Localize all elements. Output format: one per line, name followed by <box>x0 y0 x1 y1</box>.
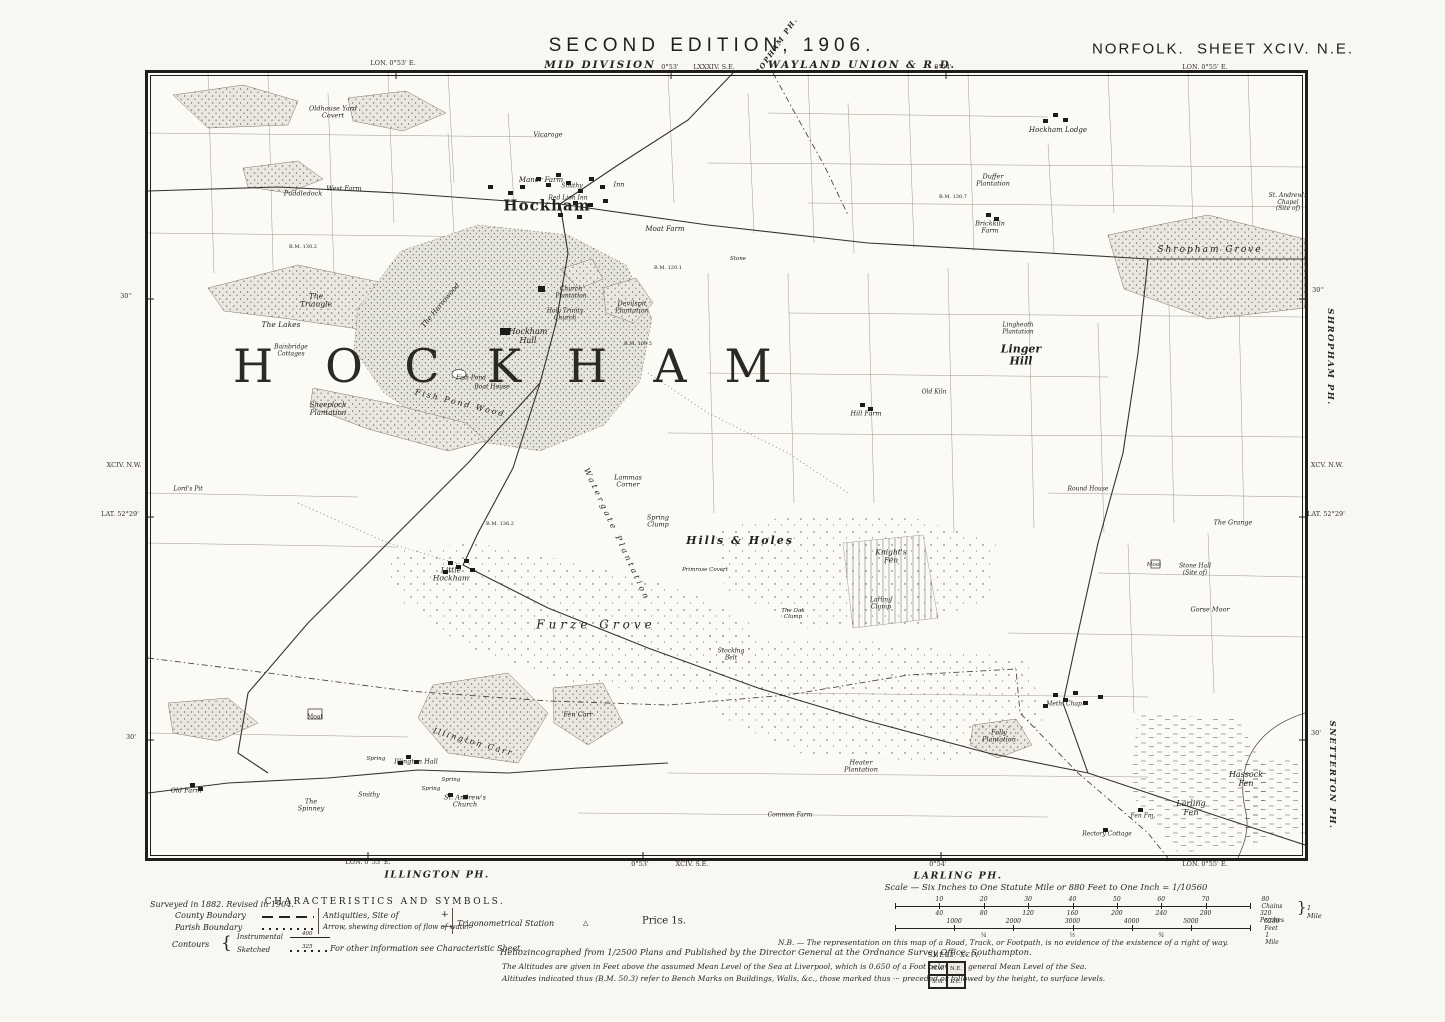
parish-boundary-sample <box>262 928 314 930</box>
place-label: Round House <box>1068 487 1109 494</box>
place-label: Spring <box>367 756 386 762</box>
scale-bar-part: 80 Chains <box>1262 896 1283 910</box>
scale-bar-part: 4000 <box>1124 918 1139 925</box>
antiquities-symbol: + <box>441 910 449 920</box>
scale-bar-part: 3000 <box>1065 918 1080 925</box>
place-label: Sheeplock Plantation <box>310 402 347 418</box>
place-label: Fen Carr <box>563 711 592 718</box>
scale-bar-part: 80 <box>980 910 988 917</box>
lon-tick-bottom-mid2: 0°54' <box>929 860 946 868</box>
place-label: The Spinney <box>298 799 325 814</box>
place-label: Devilspit Plantation <box>615 301 649 316</box>
scale-bar-part: 200 <box>1111 910 1122 917</box>
scale-bar-part <box>954 925 955 931</box>
place-label: Meth. Chap. <box>1046 702 1084 709</box>
scale-bar-part <box>1013 925 1014 931</box>
legend-title: CHARACTERISTICS AND SYMBOLS. <box>265 897 506 907</box>
place-label: Moat <box>307 715 323 722</box>
altitude-note-1: The Altitudes are given in Feet above th… <box>502 962 1087 971</box>
adjoining-parish-right-top: SHROPHAM PH. <box>1325 308 1335 405</box>
contour-sketched-value: 325 <box>302 944 313 950</box>
place-label: B.M. 136.2 <box>486 522 514 528</box>
legend-other-note: For other information see Characteristic… <box>330 944 523 953</box>
legend-divider-1 <box>318 908 319 934</box>
place-label: Brickkiln Farm <box>975 221 1005 236</box>
adjoining-parish-bottom-left: ILLINGTON PH. <box>384 870 489 881</box>
map-area: Oldhouse Yard CovertPuddledockWest FarmV… <box>145 70 1308 861</box>
lon-label-top-left: LON. 0°53' E. <box>370 59 415 67</box>
sheet-index-grid: N.W. N.E. S.W. S.E. <box>928 961 966 989</box>
scale-bar-part: 5280 Feet <box>1264 918 1279 932</box>
place-label: Common Farm <box>768 813 813 820</box>
scale-bar-part: 60 <box>1157 896 1165 903</box>
place-label: Larling Fen <box>1176 800 1205 818</box>
place-label: Hassock Fen <box>1229 771 1263 789</box>
place-label: Primrose Covert <box>682 567 728 573</box>
lat-tick-right-top: 30'' <box>1312 286 1324 294</box>
contour-sketched-label: Sketched <box>237 946 270 954</box>
place-label: Hill Farm <box>850 410 881 417</box>
place-label: Inn <box>614 181 625 188</box>
adjoining-sheet-bottom: XCIV. S.E. <box>676 860 709 868</box>
scale-bar-part: 5000 <box>1183 918 1198 925</box>
lat-tick-left-bottom: 30' <box>126 733 136 741</box>
parish-name-letter: O <box>325 339 363 393</box>
place-label: Spring <box>422 786 441 792</box>
place-label: The Triangle <box>300 293 332 310</box>
contours-brace: { <box>221 933 232 953</box>
lat-tick-left-top: 30'' <box>120 292 132 300</box>
place-label: Rectory Cottage <box>1082 832 1132 839</box>
trig-station-symbol: △ <box>583 919 588 927</box>
parish-name-letter: A <box>653 339 686 393</box>
scale-bar-part: 30 <box>1024 896 1032 903</box>
place-label: Illington Carr <box>432 727 515 759</box>
price-label: Price 1s. <box>642 916 686 927</box>
sheet-index-ne: N.E. <box>947 962 965 975</box>
scale-bar-part: 1000 <box>947 918 962 925</box>
place-label: St. Andrew's Church <box>444 795 486 810</box>
scale-bar-part <box>1117 903 1118 909</box>
place-label: Furze Grove <box>536 618 655 631</box>
nb-note: N.B. — The representation on this map of… <box>778 938 1228 947</box>
place-label: Fish Pond Wood <box>414 388 506 419</box>
parish-name-letter: M <box>724 339 771 393</box>
scale-bar-part <box>939 903 940 909</box>
place-label: Lingheath Plantation <box>1002 322 1033 335</box>
place-label: Hockham <box>503 198 590 215</box>
place-label: St. Andrew's Chapel (Site of) <box>1269 193 1308 213</box>
scale-bar-part: 1 Mile <box>1265 932 1279 946</box>
place-label: The Oak Clump <box>781 608 804 620</box>
place-label: Manor Farm <box>519 177 563 185</box>
scale-bar-part: 240 <box>1156 910 1167 917</box>
edition-title: SECOND EDITION, 1906. <box>549 35 876 57</box>
adjoining-sheet-right: XCV. N.W. <box>1311 461 1343 469</box>
sheet-title: NORFOLK. SHEET XCIV. N.E. <box>1092 41 1354 58</box>
place-label: Shropham Grove <box>1157 245 1262 255</box>
adjoining-sheet-left: XCIV. N.W. <box>107 461 142 469</box>
lat-label-left: LAT. 52°29' <box>101 510 139 518</box>
sheet-index-sw: S.W. <box>929 975 947 988</box>
scale-bar-part: 160 <box>1067 910 1078 917</box>
place-label: Stone Hall (Site of) <box>1179 563 1211 576</box>
scale-title: Scale — Six Inches to One Statute Mile o… <box>885 883 1208 893</box>
scale-bar-part: 280 <box>1200 910 1211 917</box>
place-label: Gorse Moor <box>1190 606 1229 613</box>
place-label: Fen Fm. <box>1131 814 1156 821</box>
place-label: Knight's Fen <box>875 549 906 566</box>
scale-bar-part <box>1250 903 1251 909</box>
scale-bar-part <box>1132 925 1133 931</box>
scale-bar-part: 10 <box>936 896 944 903</box>
place-label: Folly Plantation <box>982 730 1016 745</box>
place-label: West Farm <box>326 185 361 192</box>
place-label: B.M. 120.1 <box>654 266 682 272</box>
scale-bar-part <box>1161 903 1162 909</box>
map-place-labels: Oldhouse Yard CovertPuddledockWest FarmV… <box>148 73 1305 858</box>
sheet-index: SHEET. XCIV. N.W. N.E. S.W. S.E. <box>928 952 981 989</box>
place-label: Little Hockham <box>433 567 469 584</box>
parish-name-letter: H <box>233 339 273 393</box>
place-label: Fish Pond <box>456 376 486 383</box>
scale-bar-part <box>1191 925 1192 931</box>
lat-tick-right-bottom: 30' <box>1311 729 1321 737</box>
place-label: Bainbridge Cottages <box>274 344 308 357</box>
place-label: Moat <box>1147 562 1161 568</box>
adjoining-parish-bottom-right: LARLING PH. <box>913 871 1002 882</box>
scale-bar-part: 50 <box>1113 896 1121 903</box>
county-boundary-sample <box>262 916 314 918</box>
adjoining-parish-right-bottom: SNETTERTON PH. <box>1327 721 1337 830</box>
sheet-index-nw: N.W. <box>929 962 947 975</box>
place-label: B.M. 130.7 <box>939 195 967 201</box>
place-label: Smithy <box>561 184 582 191</box>
place-label: Church Plantation <box>555 286 586 299</box>
scale-bar-part <box>1250 925 1251 931</box>
place-label: Holy Trinity Church <box>547 308 583 321</box>
place-label: B.M. 130.2 <box>289 245 317 251</box>
place-label: Larling Clump <box>870 597 892 610</box>
place-label: The Harrowood <box>420 282 462 330</box>
scale-bar-part: 70 <box>1202 896 1210 903</box>
contour-instrumental-value: 400 <box>302 931 313 937</box>
scale-bar-part <box>1073 903 1074 909</box>
mile-brace: } <box>1297 898 1307 916</box>
map-sheet: SECOND EDITION, 1906. NORFOLK. SHEET XCI… <box>0 0 1445 1022</box>
scale-bar-part: 120 <box>1022 910 1033 917</box>
parish-name-letter: H <box>567 339 607 393</box>
place-label: Spring Clump <box>647 515 669 530</box>
place-label: Vicarage <box>533 131 562 138</box>
contour-sketched-sample <box>290 950 330 952</box>
place-label: Heater Plantation <box>844 760 878 775</box>
place-label: Lord's Pit <box>173 487 202 494</box>
place-label: Stone <box>730 256 746 262</box>
place-label: Old Farm <box>171 787 202 794</box>
sheet-index-se: S.E. <box>947 975 965 988</box>
scale-bar-part <box>895 903 896 909</box>
place-label: Linger Hill <box>1001 344 1041 369</box>
place-label: Illington Hall <box>394 758 438 765</box>
place-label: Moat Farm <box>645 226 684 234</box>
scale-bar-part <box>1206 903 1207 909</box>
contour-instrumental-sample <box>290 937 330 938</box>
mile-label: 1 Mile <box>1307 904 1322 920</box>
sheet-index-label: SHEET. <box>928 952 957 959</box>
scale-bar-part: 40 <box>936 910 944 917</box>
parish-name-letter: C <box>404 339 439 393</box>
place-label: The Grange <box>1214 519 1253 526</box>
place-label: Oldhouse Yard Covert <box>309 106 357 121</box>
scale-bar-part: 20 <box>980 896 988 903</box>
scale-bar-part <box>1073 925 1074 931</box>
place-label: Puddledock <box>284 190 322 197</box>
lat-label-right: LAT. 52°29' <box>1307 510 1345 518</box>
legend-contours-label: Contours <box>172 940 209 949</box>
place-label: Smithy <box>358 793 379 800</box>
place-label: Spring <box>442 777 461 783</box>
scale-bar-part <box>1028 903 1029 909</box>
parish-name-letter: K <box>487 339 521 393</box>
place-label: Hills & Holes <box>686 535 794 547</box>
lon-tick-bottom-mid: 0°53' <box>631 860 648 868</box>
scale-bar-part: 40 <box>1069 896 1077 903</box>
scale-bar-part: 2000 <box>1006 918 1021 925</box>
contour-instrumental-label: Instrumental <box>237 933 283 941</box>
place-label: Old Kiln <box>922 390 947 397</box>
scale-bar-part <box>984 903 985 909</box>
legend-trig-label: Trigonometrical Station <box>457 919 554 928</box>
chains-scale-bar: 10203040506070408012016020024028080 Chai… <box>895 897 1250 919</box>
legend-antiquities-label: Antiquities, Site of <box>323 911 399 920</box>
place-label: Duffer Plantation <box>976 174 1010 189</box>
place-label: Lammas Corner <box>614 475 642 490</box>
place-label: Stocking Belt <box>718 648 745 661</box>
sheet-index-value: XCIV. <box>960 952 981 959</box>
place-label: Hockham Lodge <box>1029 127 1087 135</box>
place-label: The Lakes <box>262 321 301 329</box>
legend-divider-2 <box>452 908 453 934</box>
legend-parish-label: Parish Boundary <box>175 923 242 932</box>
scale-bar-part <box>895 925 896 931</box>
flow-arrow-symbol: ⟶ <box>441 922 452 931</box>
lon-label-bottom-right: LON. 0°55' E. <box>1182 860 1227 868</box>
legend-county-label: County Boundary <box>175 911 246 920</box>
place-label: B.M. 109.5 <box>624 342 652 348</box>
altitude-note-2: Altitudes indicated thus (B.M. 50.3) ref… <box>502 974 1105 983</box>
